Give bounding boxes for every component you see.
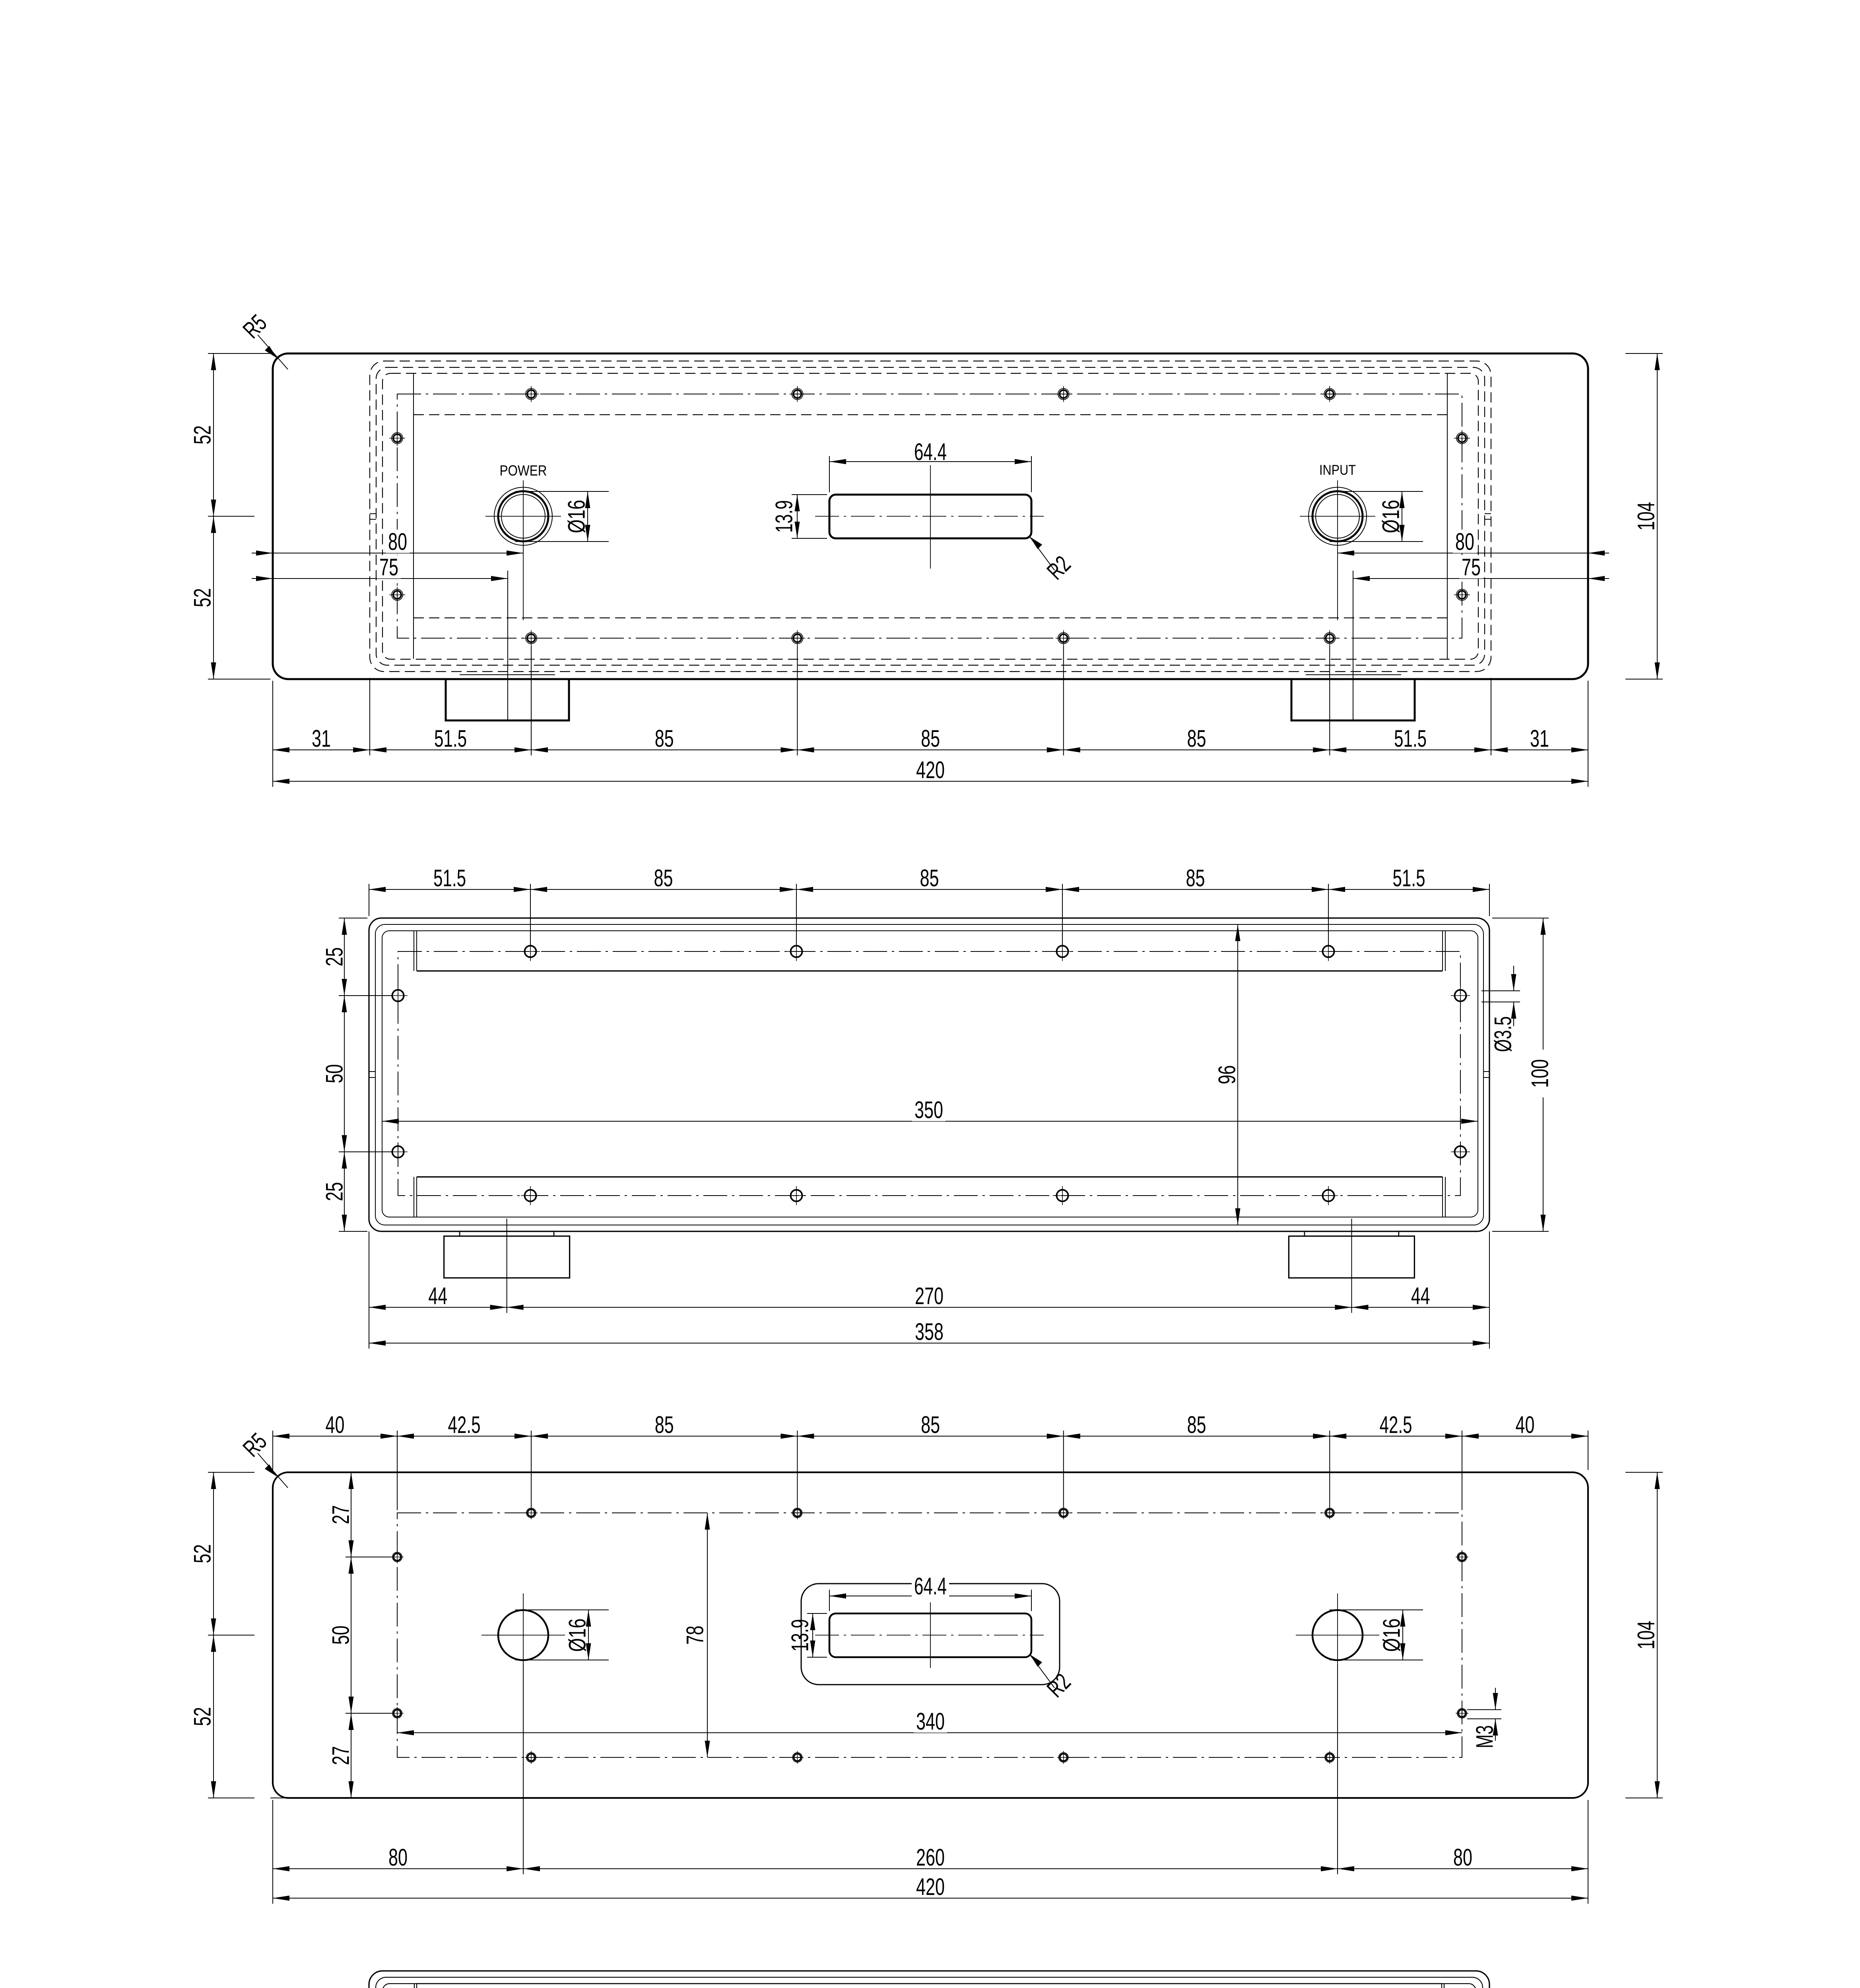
svg-text:31: 31 (1530, 725, 1549, 752)
svg-text:25: 25 (321, 1182, 348, 1201)
svg-text:51.5: 51.5 (1394, 725, 1427, 752)
svg-text:52: 52 (189, 1707, 216, 1726)
svg-text:85: 85 (921, 725, 940, 752)
svg-text:78: 78 (682, 1626, 709, 1645)
svg-text:42.5: 42.5 (1380, 1411, 1412, 1438)
svg-text:44: 44 (428, 1283, 447, 1309)
svg-text:420: 420 (916, 1873, 945, 1900)
svg-text:85: 85 (1187, 725, 1206, 752)
svg-text:50: 50 (328, 1626, 354, 1645)
svg-text:85: 85 (921, 1411, 940, 1438)
svg-text:31: 31 (312, 725, 331, 752)
svg-text:51.5: 51.5 (1393, 865, 1425, 891)
svg-text:M3: M3 (1472, 1725, 1498, 1748)
svg-text:52: 52 (189, 588, 216, 607)
svg-text:64.4: 64.4 (914, 439, 947, 465)
svg-text:52: 52 (189, 1544, 216, 1563)
svg-text:50: 50 (321, 1064, 348, 1083)
svg-text:Ø16: Ø16 (1378, 1619, 1405, 1652)
svg-text:104: 104 (1633, 502, 1660, 531)
svg-text:51.5: 51.5 (434, 725, 467, 752)
svg-text:13.9: 13.9 (787, 1619, 814, 1652)
svg-text:27: 27 (328, 1505, 354, 1524)
svg-text:40: 40 (326, 1411, 345, 1438)
svg-text:INPUT: INPUT (1319, 462, 1356, 478)
svg-text:75: 75 (1462, 554, 1481, 580)
svg-text:13.9: 13.9 (771, 500, 798, 533)
svg-text:420: 420 (916, 757, 945, 783)
svg-text:Ø16: Ø16 (564, 1619, 591, 1652)
svg-text:350: 350 (914, 1097, 943, 1123)
svg-text:64.4: 64.4 (914, 1573, 947, 1600)
svg-text:40: 40 (1516, 1411, 1535, 1438)
svg-text:85: 85 (1186, 865, 1205, 891)
svg-text:52: 52 (189, 425, 216, 445)
svg-text:Ø16: Ø16 (563, 500, 590, 533)
svg-text:104: 104 (1633, 1621, 1660, 1650)
svg-text:75: 75 (379, 554, 398, 580)
svg-text:51.5: 51.5 (433, 865, 466, 891)
svg-text:85: 85 (920, 865, 939, 891)
svg-text:358: 358 (915, 1318, 944, 1345)
svg-text:100: 100 (1527, 1059, 1553, 1088)
svg-text:85: 85 (655, 1411, 674, 1438)
svg-text:340: 340 (916, 1708, 945, 1735)
svg-text:96: 96 (1214, 1065, 1241, 1084)
svg-text:42.5: 42.5 (448, 1411, 481, 1438)
svg-text:80: 80 (388, 1844, 408, 1871)
svg-text:27: 27 (328, 1746, 354, 1765)
svg-text:85: 85 (1187, 1411, 1206, 1438)
svg-text:Ø16: Ø16 (1378, 500, 1404, 533)
svg-text:85: 85 (654, 865, 673, 891)
svg-text:80: 80 (1455, 528, 1474, 555)
svg-text:260: 260 (916, 1844, 945, 1871)
svg-text:Ø3.5: Ø3.5 (1490, 1016, 1516, 1052)
svg-text:85: 85 (655, 725, 674, 752)
svg-text:44: 44 (1411, 1283, 1430, 1309)
svg-text:270: 270 (915, 1283, 944, 1309)
svg-text:80: 80 (1453, 1844, 1472, 1871)
svg-text:25: 25 (321, 947, 348, 967)
svg-text:POWER: POWER (500, 462, 547, 479)
svg-text:80: 80 (388, 528, 407, 555)
